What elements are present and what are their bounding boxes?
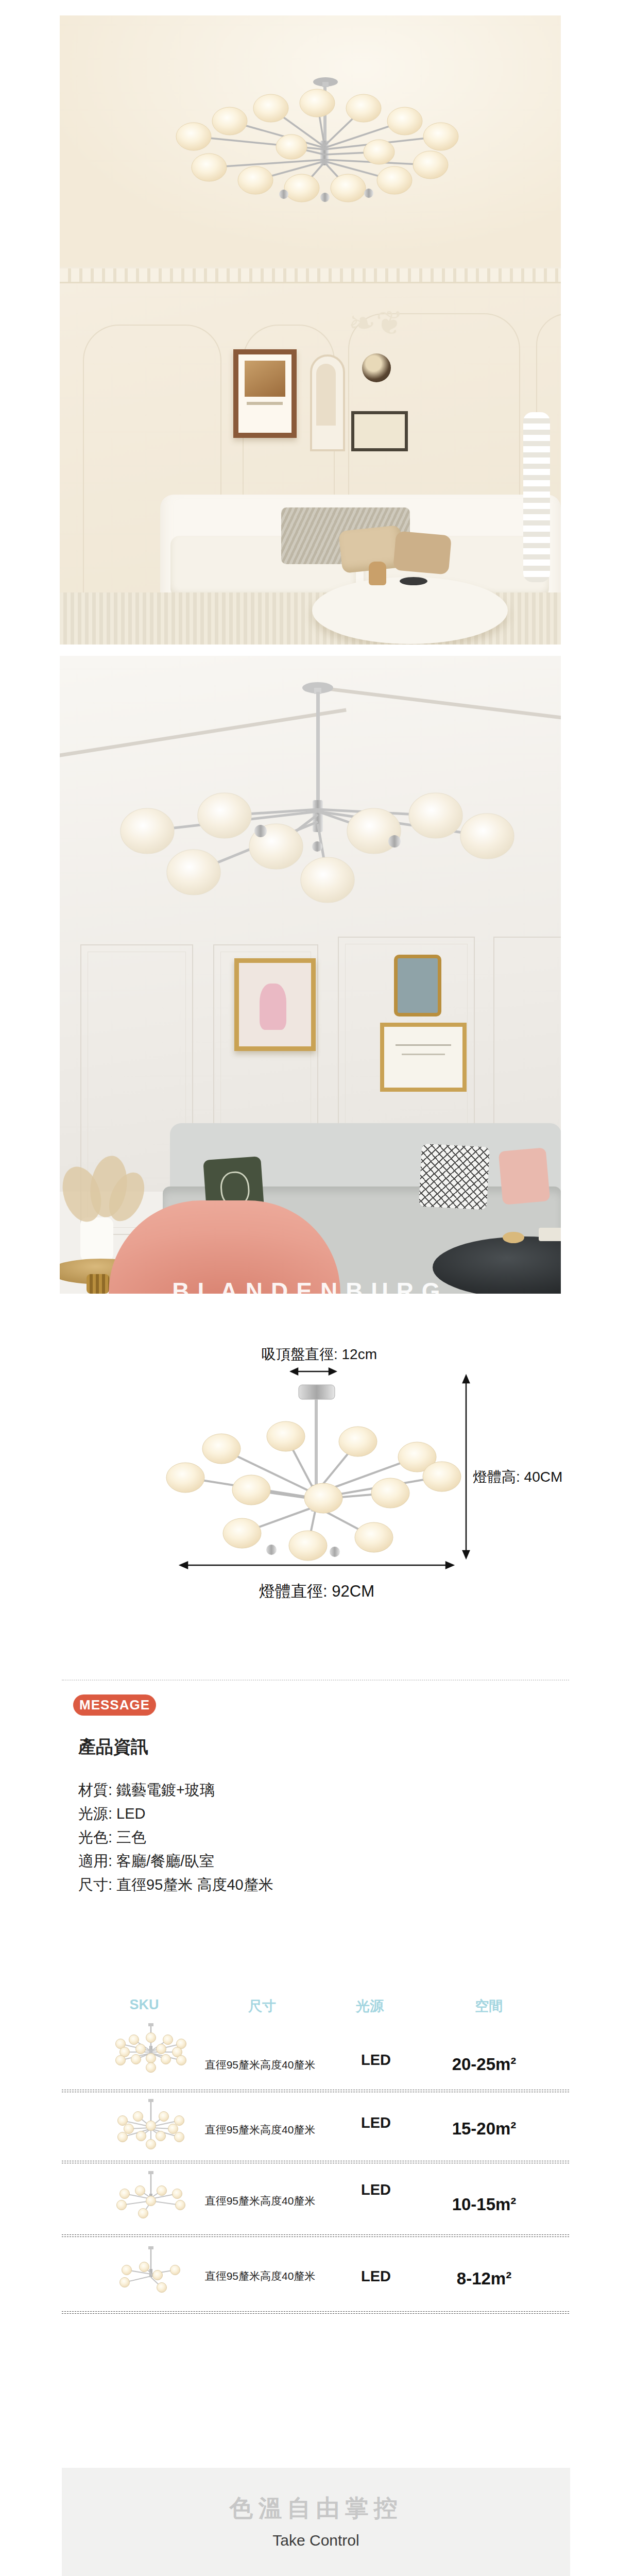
row-divider xyxy=(62,2090,569,2092)
sku-thumbnail-8 xyxy=(112,2170,190,2227)
sku-thumbnail-6 xyxy=(112,2245,190,2302)
painting-figure xyxy=(260,984,286,1030)
books-stack xyxy=(539,1228,561,1241)
product-detail-page: ❧❦ xyxy=(0,0,618,2576)
row-light: LED xyxy=(350,2114,402,2131)
row-divider xyxy=(62,2311,569,2314)
picture-frame-arched xyxy=(310,354,345,451)
row-size: 直徑95釐米高度40釐米 xyxy=(201,2123,319,2137)
diameter-arrow-icon xyxy=(180,1562,453,1568)
lifestyle-photo-1: ❧❦ xyxy=(60,15,561,645)
vase xyxy=(369,562,386,585)
chandelier-photo1 xyxy=(163,59,472,224)
info-size: 尺寸: 直徑95釐米 高度40釐米 xyxy=(78,1875,273,1895)
color-temp-title: 色溫自由掌控 xyxy=(62,2493,570,2524)
dotted-divider xyxy=(62,1680,569,1681)
info-light-source: 光源: LED xyxy=(78,1804,146,1824)
photo-watermark: BLANDENBURG xyxy=(60,1277,561,1294)
pillow-geometric xyxy=(419,1144,490,1210)
table-header-size: 尺寸 xyxy=(236,1997,288,2015)
table-header-sku: SKU xyxy=(118,1997,170,2013)
height-arrow-icon xyxy=(463,1376,469,1558)
row-size: 直徑95釐米高度40釐米 xyxy=(201,2194,319,2208)
gold-frame-sketch xyxy=(380,1023,467,1092)
coffee-table-round xyxy=(312,577,508,644)
wall-relief-heart: ❧❦ xyxy=(348,304,403,342)
pillow-tan xyxy=(393,531,452,574)
gold-tray xyxy=(503,1232,524,1243)
pillow-geometric-pattern xyxy=(419,1144,490,1210)
gold-frame-portrait xyxy=(394,955,441,1016)
wall-clock xyxy=(362,353,391,382)
floor-lamp-ribbed xyxy=(523,412,550,582)
row-divider xyxy=(62,2161,569,2163)
row-light: LED xyxy=(350,2268,402,2285)
picture-art xyxy=(245,361,285,397)
sku-thumbnail-12 xyxy=(112,2098,190,2155)
bowl xyxy=(400,577,427,585)
product-info-title: 產品資訊 xyxy=(78,1735,148,1759)
row-space: 10-15m² xyxy=(445,2195,523,2214)
gold-frame-painting xyxy=(234,958,316,1051)
picture-caption xyxy=(247,402,283,405)
width-arrow-icon xyxy=(291,1368,336,1375)
picture-art xyxy=(316,364,336,426)
body-height-label: 燈體高: 40CM xyxy=(473,1467,586,1487)
color-temp-subtitle: Take Control xyxy=(62,2532,570,2549)
row-size: 直徑95釐米高度40釐米 xyxy=(201,2269,319,2283)
crown-molding xyxy=(60,267,561,283)
table-header-light: 光源 xyxy=(344,1997,396,2015)
sketch-line xyxy=(402,1054,445,1055)
row-space: 20-25m² xyxy=(445,2055,523,2074)
row-space: 8-12m² xyxy=(445,2269,523,2289)
message-badge: MESSAGE xyxy=(73,1694,156,1716)
pillow-pink xyxy=(499,1147,551,1205)
chandelier-photo2 xyxy=(106,676,528,908)
picture-frame-rect xyxy=(351,411,408,451)
info-light-color: 光色: 三色 xyxy=(78,1827,146,1848)
row-space: 15-20m² xyxy=(445,2119,523,2139)
row-size: 直徑95釐米高度40釐米 xyxy=(201,2058,319,2072)
body-diameter-label: 燈體直徑: 92CM xyxy=(214,1581,420,1602)
row-light: LED xyxy=(350,2181,402,2198)
sku-thumbnail-15 xyxy=(112,2022,190,2079)
table-header-space: 空間 xyxy=(463,1997,514,2015)
info-usage: 適用: 客廳/餐廳/臥室 xyxy=(78,1851,214,1872)
white-vase xyxy=(80,1217,113,1264)
color-temp-section: 色溫自由掌控 Take Control xyxy=(62,2468,570,2576)
row-divider xyxy=(62,2234,569,2237)
info-material: 材質: 鐵藝電鍍+玻璃 xyxy=(78,1780,215,1801)
lifestyle-photo-2: BLANDENBURG xyxy=(60,656,561,1294)
sketch-line xyxy=(396,1044,451,1046)
picture-frame-large xyxy=(233,349,297,438)
row-light: LED xyxy=(350,2052,402,2069)
canopy-diameter-label: 吸頂盤直徑: 12cm xyxy=(216,1345,422,1364)
